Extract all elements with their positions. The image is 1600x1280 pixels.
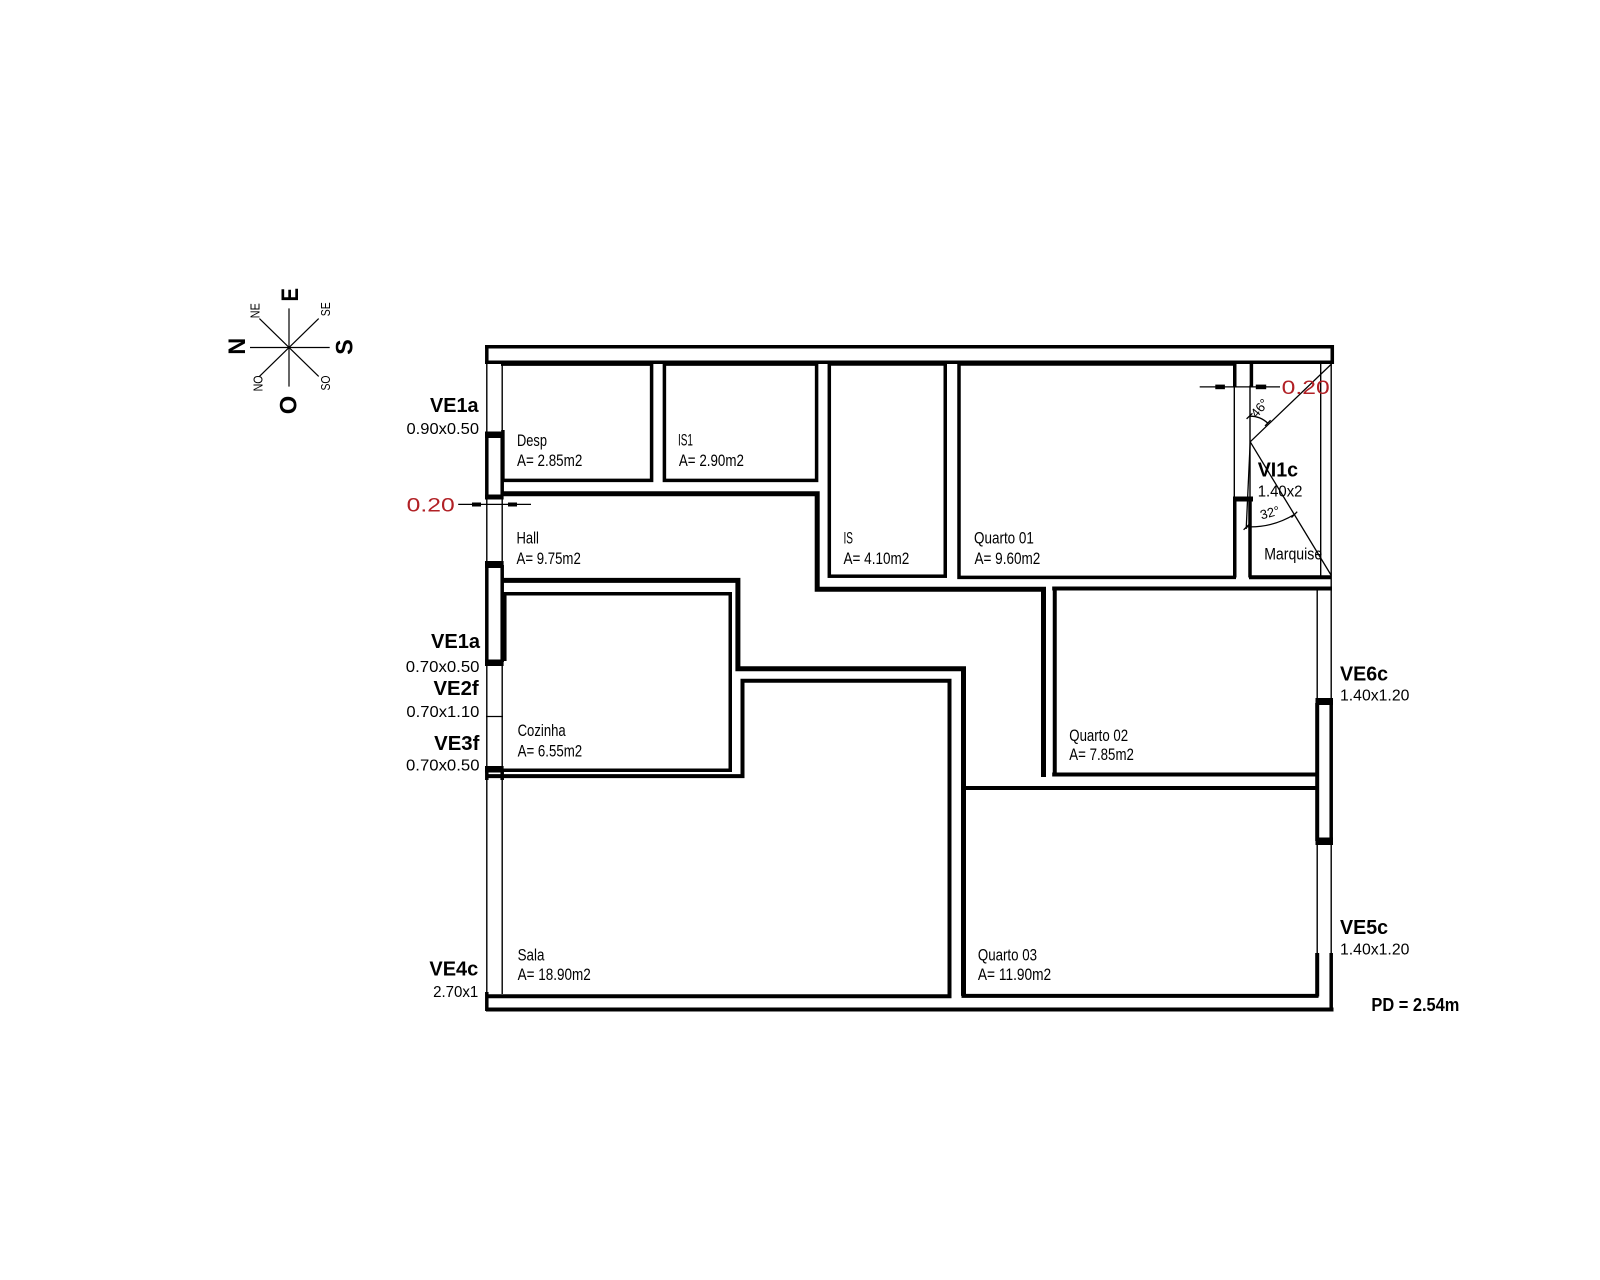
svg-text:VE5c: VE5c: [1340, 917, 1388, 939]
svg-text:Sala: Sala: [518, 947, 545, 965]
svg-text:IS: IS: [844, 530, 854, 548]
svg-text:A= 9.60m2: A= 9.60m2: [975, 550, 1041, 568]
svg-text:SO: SO: [318, 376, 333, 391]
svg-text:E: E: [277, 288, 304, 302]
svg-text:0.70x1.10: 0.70x1.10: [406, 704, 479, 721]
svg-text:VE3f: VE3f: [434, 733, 480, 755]
svg-text:Quarto 03: Quarto 03: [978, 947, 1037, 965]
svg-text:Desp: Desp: [517, 432, 547, 450]
svg-text:PD = 2.54m: PD = 2.54m: [1371, 995, 1459, 1015]
svg-text:A= 4.10m2: A= 4.10m2: [844, 550, 910, 568]
svg-text:1.40x1.20: 1.40x1.20: [1340, 687, 1410, 704]
svg-text:0.90x0.50: 0.90x0.50: [407, 421, 480, 438]
svg-text:Quarto 02: Quarto 02: [1069, 727, 1128, 745]
svg-text:A= 2.90m2: A= 2.90m2: [679, 452, 744, 470]
svg-text:S: S: [332, 339, 359, 355]
svg-text:NE: NE: [248, 303, 263, 318]
svg-text:VE1a: VE1a: [431, 631, 481, 653]
svg-text:A= 11.90m2: A= 11.90m2: [978, 966, 1051, 984]
svg-text:VE4c: VE4c: [429, 959, 478, 981]
svg-text:VE1a: VE1a: [430, 395, 479, 417]
svg-text:0.70x0.50: 0.70x0.50: [406, 758, 480, 775]
svg-text:A= 7.85m2: A= 7.85m2: [1069, 746, 1134, 764]
svg-text:Quarto 01: Quarto 01: [974, 530, 1034, 548]
svg-text:0.20: 0.20: [407, 496, 455, 517]
svg-text:VI1c: VI1c: [1258, 460, 1298, 482]
svg-text:Cozinha: Cozinha: [518, 722, 567, 740]
svg-text:IS1: IS1: [678, 432, 693, 450]
svg-text:A= 9.75m2: A= 9.75m2: [517, 550, 581, 568]
svg-text:0.70x0.50: 0.70x0.50: [406, 659, 480, 676]
svg-text:VE6c: VE6c: [1340, 663, 1388, 685]
svg-text:N: N: [224, 338, 251, 355]
svg-text:SE: SE: [318, 302, 333, 316]
svg-text:O: O: [276, 396, 303, 415]
svg-text:A= 6.55m2: A= 6.55m2: [518, 743, 583, 761]
svg-text:0.20: 0.20: [1282, 378, 1330, 399]
svg-text:Marquise: Marquise: [1264, 546, 1322, 564]
svg-text:1.40x1.20: 1.40x1.20: [1340, 942, 1410, 959]
svg-text:1.40x2: 1.40x2: [1258, 483, 1303, 500]
svg-text:NO: NO: [250, 375, 265, 391]
svg-text:A= 18.90m2: A= 18.90m2: [518, 966, 591, 984]
svg-text:Hall: Hall: [517, 530, 539, 548]
svg-text:A= 2.85m2: A= 2.85m2: [517, 452, 582, 470]
svg-text:VE2f: VE2f: [434, 678, 480, 700]
svg-text:2.70x1: 2.70x1: [433, 984, 478, 1001]
